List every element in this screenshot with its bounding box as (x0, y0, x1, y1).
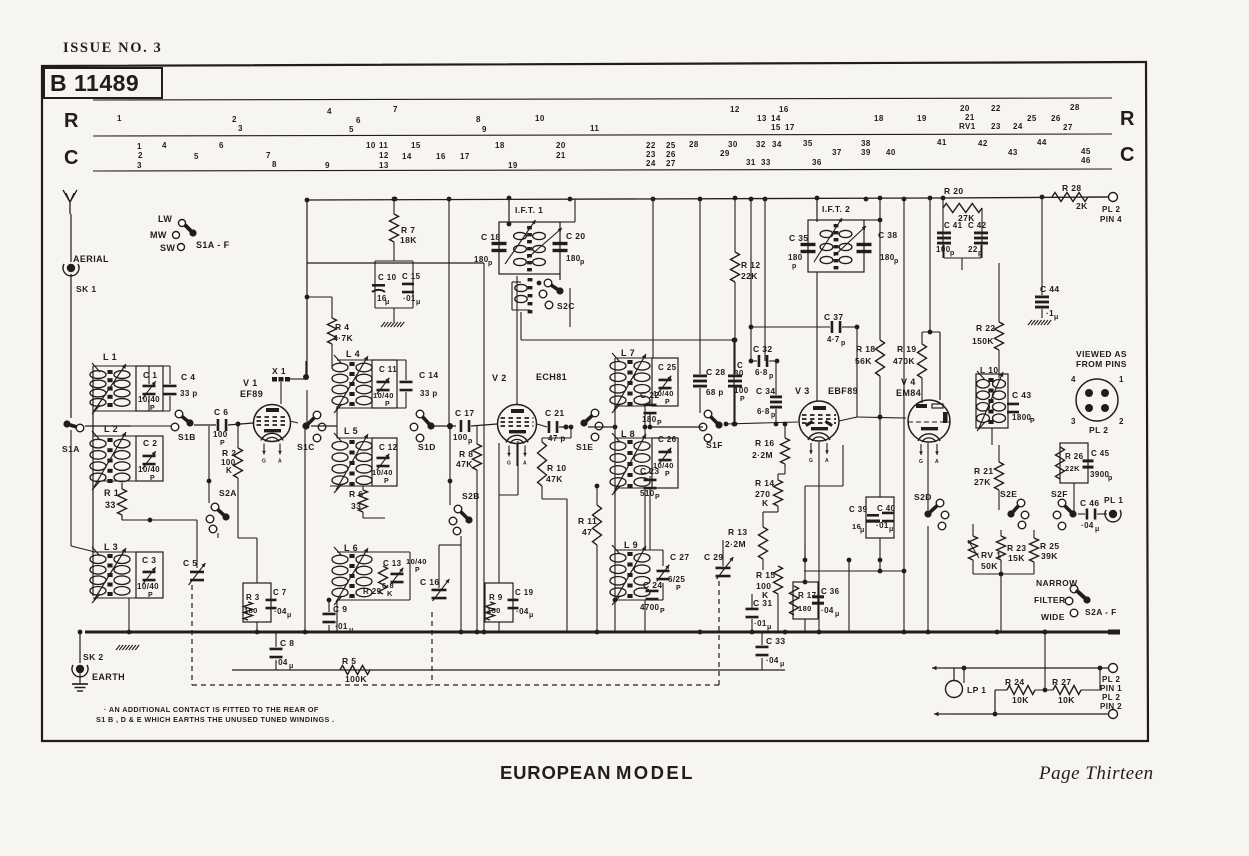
svg-text:V 3: V 3 (795, 386, 810, 396)
svg-text:26: 26 (666, 150, 676, 159)
svg-text:VIEWED AS: VIEWED AS (1076, 349, 1127, 359)
svg-text:30: 30 (728, 140, 738, 149)
svg-text:13: 13 (757, 114, 767, 123)
svg-text:C 20: C 20 (566, 231, 586, 241)
svg-text:2: 2 (1119, 417, 1124, 426)
svg-text:· AN ADDITIONAL CONTACT IS: · AN ADDITIONAL CONTACT IS FITTED TO THE… (104, 705, 319, 714)
svg-text:·01: ·01 (403, 294, 416, 303)
svg-text:·04: ·04 (766, 656, 779, 665)
svg-text:C 23: C 23 (640, 466, 660, 476)
svg-text:G: G (262, 459, 266, 465)
svg-text:47K: 47K (546, 474, 563, 484)
svg-text:19: 19 (508, 161, 518, 170)
svg-text:25: 25 (666, 141, 676, 150)
svg-text:100K: 100K (345, 674, 367, 684)
svg-text:EBF89: EBF89 (828, 386, 858, 396)
svg-text:47K: 47K (456, 459, 473, 469)
svg-text:p: p (769, 373, 774, 380)
svg-text:p: p (771, 412, 776, 419)
svg-text:18: 18 (874, 114, 884, 123)
svg-text:R: R (64, 110, 79, 132)
svg-text:29: 29 (720, 149, 730, 158)
svg-text:S1A: S1A (62, 444, 80, 454)
svg-text:7: 7 (393, 105, 398, 114)
svg-text:180: 180 (244, 606, 258, 615)
svg-text:SK 1: SK 1 (76, 284, 97, 294)
svg-text:S1 B , D & E WHICH EARTHS T: S1 B , D & E WHICH EARTHS THE UNUSED TUN… (96, 715, 334, 724)
svg-text:A: A (825, 458, 829, 464)
svg-text:S1D: S1D (418, 442, 436, 452)
svg-text:36: 36 (812, 158, 822, 167)
svg-text:22: 22 (991, 104, 1001, 113)
svg-text:S1A - F: S1A - F (196, 240, 230, 250)
svg-text:5: 5 (194, 152, 199, 161)
svg-text:L 5: L 5 (344, 426, 358, 436)
svg-text:RV1: RV1 (959, 122, 976, 131)
svg-text:R 5: R 5 (342, 656, 356, 666)
svg-text:C 44: C 44 (1040, 284, 1060, 294)
svg-text:PIN 1: PIN 1 (1100, 684, 1122, 693)
svg-text:18: 18 (495, 141, 505, 150)
svg-text:p: p (468, 438, 473, 445)
svg-text:LW: LW (158, 214, 172, 224)
svg-text:μ: μ (780, 661, 785, 668)
svg-text:EARTH: EARTH (92, 672, 125, 682)
svg-text:C 43: C 43 (1012, 390, 1032, 400)
svg-text:C 2: C 2 (143, 438, 157, 448)
svg-text:μ: μ (860, 527, 865, 534)
svg-text:R 18: R 18 (856, 344, 876, 354)
svg-text:R 16: R 16 (755, 438, 775, 448)
svg-text:22K: 22K (1065, 464, 1080, 473)
svg-text:9: 9 (482, 125, 487, 134)
svg-text:180: 180 (880, 253, 895, 262)
svg-text:L 1: L 1 (103, 352, 117, 362)
svg-text:R 3: R 3 (246, 593, 260, 602)
svg-text:39: 39 (861, 148, 871, 157)
svg-text:C 22: C 22 (640, 390, 660, 400)
svg-text:510: 510 (640, 489, 655, 498)
svg-text:EF89: EF89 (240, 389, 263, 399)
svg-text:p: p (792, 263, 797, 270)
svg-text:1: 1 (1119, 375, 1124, 384)
svg-text:26: 26 (1051, 114, 1061, 123)
svg-text:10K: 10K (1012, 695, 1029, 705)
svg-text:1800: 1800 (1012, 413, 1032, 422)
svg-text:·04: ·04 (821, 606, 834, 615)
svg-text:P: P (385, 401, 390, 408)
svg-text:22K: 22K (741, 271, 758, 281)
svg-text:C 39: C 39 (849, 505, 868, 514)
svg-text:C 38: C 38 (878, 230, 898, 240)
svg-text:I.F.T. 1: I.F.T. 1 (515, 205, 543, 215)
svg-text:PIN 2: PIN 2 (1100, 702, 1122, 711)
svg-text:P: P (665, 399, 670, 406)
svg-text:6·8: 6·8 (757, 407, 770, 416)
svg-text:C: C (1120, 144, 1135, 166)
svg-text:C 36: C 36 (821, 587, 840, 596)
svg-text:R 4: R 4 (335, 322, 349, 332)
svg-text:G: G (507, 461, 511, 467)
svg-text:C 29: C 29 (704, 552, 724, 562)
svg-text:·04: ·04 (275, 658, 288, 667)
svg-text:10K: 10K (1058, 695, 1075, 705)
svg-text:33: 33 (761, 158, 771, 167)
svg-text:P: P (676, 585, 681, 592)
svg-text:WIDE: WIDE (1041, 612, 1065, 622)
svg-text:14: 14 (771, 114, 781, 123)
svg-text:6/25: 6/25 (668, 575, 685, 584)
svg-text:R 26: R 26 (1065, 452, 1084, 461)
svg-text:μ: μ (767, 624, 772, 631)
svg-text:p: p (488, 260, 493, 267)
svg-text:μ: μ (385, 299, 390, 306)
svg-text:S2C: S2C (557, 301, 575, 311)
svg-text:EUROPEAN: EUROPEAN (500, 762, 611, 783)
svg-text:3: 3 (137, 161, 142, 170)
svg-text:4: 4 (162, 141, 167, 150)
svg-text:100: 100 (734, 386, 749, 395)
svg-text:56K: 56K (855, 356, 872, 366)
svg-text:PL 2: PL 2 (1102, 693, 1121, 702)
svg-text:MODEL: MODEL (616, 762, 695, 783)
svg-text:16: 16 (436, 152, 446, 161)
svg-text:20: 20 (556, 141, 566, 150)
svg-text:R 22: R 22 (976, 323, 996, 333)
svg-text:C 10: C 10 (378, 273, 397, 282)
svg-text:100: 100 (936, 245, 951, 254)
svg-text:17: 17 (785, 123, 795, 132)
svg-text:180: 180 (788, 253, 803, 262)
svg-text:100: 100 (213, 430, 228, 439)
svg-text:R 25: R 25 (1040, 541, 1060, 551)
svg-text:15: 15 (411, 141, 421, 150)
svg-text:6·8: 6·8 (755, 368, 768, 377)
svg-text:C 3: C 3 (142, 555, 156, 565)
svg-text:6: 6 (219, 141, 224, 150)
svg-text:C 37: C 37 (824, 312, 844, 322)
svg-text:4: 4 (327, 107, 332, 116)
svg-text:1: 1 (117, 114, 122, 123)
svg-text:37: 37 (832, 148, 842, 157)
svg-text:39K: 39K (1041, 551, 1058, 561)
svg-text:C 46: C 46 (1080, 498, 1100, 508)
svg-text:PL 2: PL 2 (1102, 675, 1121, 684)
svg-text:S2E: S2E (1000, 489, 1017, 499)
svg-text:C 4: C 4 (181, 372, 195, 382)
svg-text:43: 43 (1008, 148, 1018, 157)
svg-text:S1C: S1C (297, 442, 315, 452)
svg-text:LP 1: LP 1 (967, 685, 986, 695)
svg-text:18K: 18K (400, 235, 417, 245)
svg-text:31: 31 (746, 158, 756, 167)
svg-text:C 34: C 34 (756, 386, 776, 396)
svg-text:C 17: C 17 (455, 408, 475, 418)
svg-text:2K: 2K (1076, 201, 1088, 211)
svg-text:P: P (740, 396, 745, 403)
svg-text:1: 1 (137, 142, 142, 151)
svg-text:·01: ·01 (754, 619, 767, 628)
svg-text:40: 40 (886, 148, 896, 157)
svg-text:R 7: R 7 (401, 225, 415, 235)
svg-text:C 19: C 19 (515, 588, 534, 597)
svg-text:P: P (655, 494, 660, 501)
svg-text:ECH81: ECH81 (536, 372, 567, 382)
svg-text:10: 10 (535, 114, 545, 123)
svg-text:MW: MW (150, 230, 167, 240)
svg-text:C 35: C 35 (789, 233, 809, 243)
svg-text:19: 19 (917, 114, 927, 123)
svg-text:R 21: R 21 (974, 466, 994, 476)
svg-text:41: 41 (937, 138, 947, 147)
svg-text:180: 180 (474, 255, 489, 264)
svg-text:C 26: C 26 (658, 435, 677, 444)
svg-text:C 16: C 16 (420, 577, 440, 587)
svg-text:12: 12 (379, 151, 389, 160)
svg-text:21: 21 (556, 151, 566, 160)
svg-text:μ: μ (1095, 526, 1100, 533)
svg-text:4·7: 4·7 (827, 335, 840, 344)
svg-text:μ: μ (1054, 314, 1059, 321)
svg-text:·04: ·04 (274, 607, 287, 616)
svg-text:R 19: R 19 (897, 344, 917, 354)
svg-text:μ: μ (416, 299, 421, 306)
svg-text:L 7: L 7 (621, 348, 635, 358)
svg-text:33: 33 (105, 500, 116, 510)
svg-text:S2A: S2A (219, 488, 237, 498)
svg-text:C 5: C 5 (183, 558, 197, 568)
svg-text:180: 180 (566, 254, 581, 263)
svg-text:150K: 150K (972, 336, 994, 346)
svg-text:P: P (220, 440, 225, 447)
svg-text:100: 100 (453, 433, 468, 442)
svg-text:38: 38 (861, 139, 871, 148)
svg-text:21: 21 (965, 113, 975, 122)
svg-text:X 1: X 1 (272, 366, 286, 376)
svg-text:R 14: R 14 (755, 478, 775, 488)
svg-text:K: K (762, 498, 769, 508)
svg-text:68 p: 68 p (706, 388, 724, 397)
svg-text:27: 27 (666, 159, 676, 168)
svg-text:14: 14 (402, 152, 412, 161)
svg-text:10/40: 10/40 (137, 582, 159, 591)
svg-text:S1F: S1F (706, 440, 723, 450)
svg-text:2: 2 (232, 115, 237, 124)
svg-text:R 15: R 15 (756, 570, 776, 580)
svg-text:PL 2: PL 2 (1102, 205, 1121, 214)
svg-text:5: 5 (349, 125, 354, 134)
svg-text:C 41: C 41 (944, 221, 963, 230)
svg-text:2·2M: 2·2M (725, 539, 746, 549)
svg-text:B 11489: B 11489 (50, 70, 139, 96)
svg-text:11: 11 (379, 141, 388, 150)
svg-text:C 18: C 18 (481, 232, 501, 242)
svg-text:42: 42 (978, 139, 988, 148)
svg-text:R 24: R 24 (1005, 677, 1025, 687)
svg-text:C: C (64, 147, 79, 169)
svg-text:C 33: C 33 (766, 636, 786, 646)
svg-text:15: 15 (771, 123, 781, 132)
svg-text:C 21: C 21 (545, 408, 565, 418)
svg-text:S1B: S1B (178, 432, 196, 442)
svg-text:2·2M: 2·2M (752, 450, 773, 460)
svg-text:S2A - F: S2A - F (1085, 607, 1117, 617)
svg-text:C 9: C 9 (333, 604, 347, 614)
svg-text:28: 28 (1070, 103, 1080, 112)
svg-text:32: 32 (756, 140, 766, 149)
svg-text:A: A (523, 461, 527, 467)
svg-text:C 7: C 7 (273, 588, 287, 597)
svg-text:K: K (387, 589, 393, 598)
svg-text:4700: 4700 (640, 603, 660, 612)
svg-text:C 12: C 12 (379, 443, 398, 452)
svg-text:K: K (226, 466, 232, 475)
svg-text:R 20: R 20 (944, 186, 964, 196)
svg-text:PL 1: PL 1 (1104, 495, 1123, 505)
svg-text:P: P (384, 478, 389, 485)
svg-text:27: 27 (1063, 123, 1073, 132)
svg-text:μ: μ (889, 526, 894, 533)
svg-text:A: A (278, 459, 282, 465)
svg-text:C 24: C 24 (643, 580, 663, 590)
svg-text:AERIAL: AERIAL (73, 254, 109, 264)
svg-text:A: A (935, 459, 939, 465)
svg-text:C 13: C 13 (383, 559, 402, 568)
svg-text:P: P (1030, 418, 1035, 425)
svg-text:·1: ·1 (1046, 309, 1054, 318)
svg-text:C 45: C 45 (1091, 449, 1110, 458)
svg-text:10: 10 (366, 141, 376, 150)
svg-text:V 2: V 2 (492, 373, 507, 383)
svg-text:C 6: C 6 (214, 407, 228, 417)
svg-text:EM84: EM84 (896, 388, 921, 398)
svg-text:44: 44 (1037, 138, 1047, 147)
svg-text:35: 35 (803, 139, 813, 148)
svg-text:I.F.T. 2: I.F.T. 2 (822, 204, 850, 214)
svg-text:46: 46 (1081, 156, 1091, 165)
svg-text:6: 6 (356, 116, 361, 125)
svg-text:180: 180 (798, 604, 812, 613)
svg-text:34: 34 (772, 140, 782, 149)
svg-text:p: p (841, 340, 846, 347)
svg-text:2: 2 (138, 151, 143, 160)
svg-text:3900: 3900 (1090, 470, 1110, 479)
svg-text:G: G (919, 459, 923, 465)
svg-text:33 p: 33 p (420, 389, 438, 398)
svg-text:SW: SW (160, 243, 175, 253)
svg-text:20: 20 (960, 104, 970, 113)
svg-text:C 28: C 28 (706, 367, 726, 377)
svg-text:11: 11 (590, 124, 599, 133)
svg-text:p: p (580, 259, 585, 266)
svg-text:C 8: C 8 (280, 638, 294, 648)
svg-text:C 14: C 14 (419, 370, 439, 380)
svg-text:15K: 15K (1008, 553, 1025, 563)
svg-text:4: 4 (1071, 375, 1076, 384)
svg-text:12: 12 (730, 105, 740, 114)
svg-text:μ: μ (529, 612, 534, 619)
svg-text:C 15: C 15 (402, 272, 421, 281)
svg-text:3: 3 (1071, 417, 1076, 426)
svg-text:C 42: C 42 (968, 221, 987, 230)
svg-text:R 28: R 28 (1062, 183, 1082, 193)
svg-text:25: 25 (1027, 114, 1037, 123)
svg-text:28: 28 (689, 140, 699, 149)
svg-text:L 4: L 4 (346, 349, 360, 359)
svg-text:22: 22 (646, 141, 656, 150)
svg-text:7: 7 (266, 151, 271, 160)
svg-text:8: 8 (476, 115, 481, 124)
svg-text:P: P (660, 608, 665, 615)
svg-text:p: p (1108, 475, 1113, 482)
svg-text:10/40: 10/40 (138, 465, 160, 474)
svg-text:Page Thirteen: Page Thirteen (1038, 763, 1154, 784)
svg-text:R 11: R 11 (578, 516, 597, 526)
svg-text:p: p (978, 250, 983, 257)
svg-text:10/40: 10/40 (372, 468, 393, 477)
svg-text:SK 2: SK 2 (83, 652, 104, 662)
svg-text:23: 23 (646, 150, 656, 159)
svg-text:R 10: R 10 (547, 463, 567, 473)
svg-text:C 11: C 11 (379, 365, 397, 374)
svg-text:C 27: C 27 (670, 552, 690, 562)
svg-text:C 32: C 32 (753, 344, 773, 354)
svg-text:24: 24 (646, 159, 656, 168)
svg-text:·01: ·01 (876, 521, 889, 530)
svg-text:R 23: R 23 (1007, 543, 1027, 553)
svg-text:8: 8 (272, 160, 277, 169)
svg-text:S2F: S2F (1051, 489, 1068, 499)
svg-text:·04: ·04 (516, 607, 529, 616)
svg-text:V 4: V 4 (901, 377, 916, 387)
svg-text:17: 17 (460, 152, 470, 161)
svg-text:FROM PINS: FROM PINS (1076, 359, 1127, 369)
svg-text:P: P (415, 567, 420, 574)
svg-text:μ: μ (287, 612, 292, 619)
svg-text:ISSUE NO. 3: ISSUE NO. 3 (63, 40, 162, 56)
svg-text:P: P (665, 471, 670, 478)
svg-text:45: 45 (1081, 147, 1091, 156)
svg-text:PL 2: PL 2 (1089, 425, 1108, 435)
svg-text:C 25: C 25 (658, 363, 677, 372)
svg-text:μ: μ (349, 627, 354, 634)
svg-text:150: 150 (487, 606, 501, 615)
svg-text:·04: ·04 (1081, 521, 1094, 530)
svg-text:R 1: R 1 (104, 488, 119, 498)
svg-text:G: G (809, 458, 813, 464)
svg-text:FILTER: FILTER (1034, 595, 1066, 605)
svg-text:9: 9 (325, 161, 330, 170)
svg-text:L 9: L 9 (624, 540, 638, 550)
svg-text:p: p (894, 258, 899, 265)
svg-text:L 3: L 3 (104, 542, 118, 552)
svg-text:V 1: V 1 (243, 378, 258, 388)
svg-text:10/40: 10/40 (406, 557, 427, 566)
svg-text:10/40: 10/40 (373, 391, 394, 400)
svg-text:P: P (657, 420, 662, 427)
svg-text:μ: μ (289, 663, 294, 670)
svg-text:23: 23 (991, 122, 1001, 131)
svg-text:S1E: S1E (576, 442, 593, 452)
svg-text:R: R (1120, 108, 1135, 130)
svg-text:33 p: 33 p (180, 389, 198, 398)
svg-text:16: 16 (779, 105, 789, 114)
svg-text:R 13: R 13 (728, 527, 748, 537)
svg-text:27K: 27K (974, 477, 991, 487)
svg-text:180: 180 (642, 415, 657, 424)
svg-text:R 9: R 9 (489, 593, 503, 602)
svg-text:50K: 50K (981, 561, 998, 571)
